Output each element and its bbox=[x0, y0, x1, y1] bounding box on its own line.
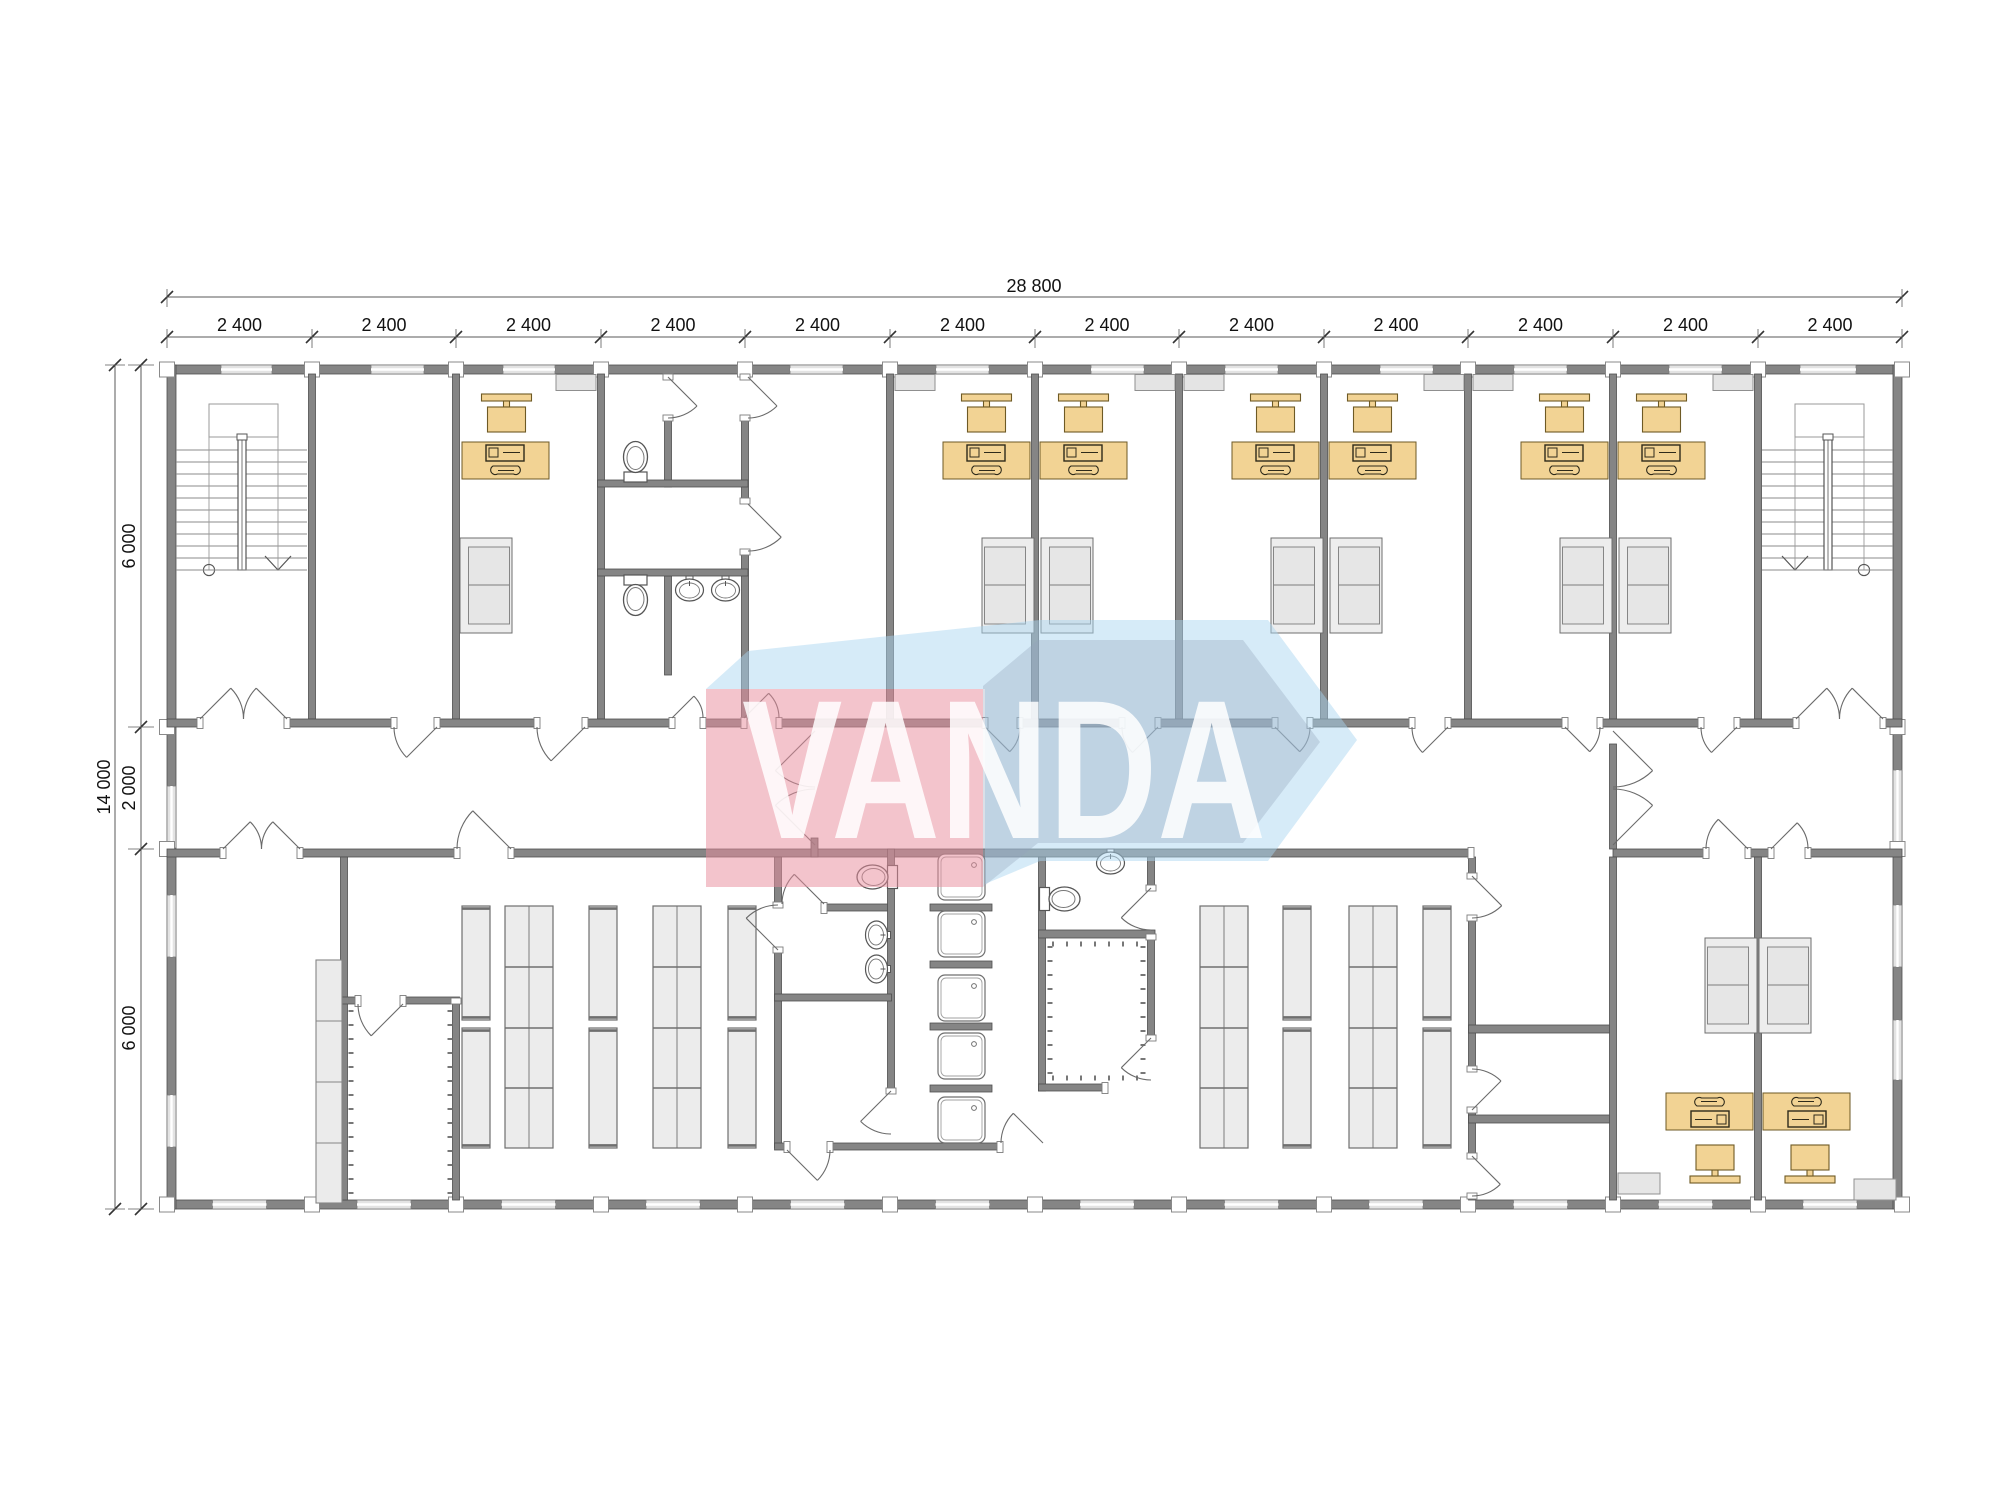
svg-text:2 400: 2 400 bbox=[1518, 315, 1563, 335]
svg-text:2 400: 2 400 bbox=[795, 315, 840, 335]
svg-text:2 400: 2 400 bbox=[217, 315, 262, 335]
svg-text:2 400: 2 400 bbox=[1807, 315, 1852, 335]
svg-text:14 000: 14 000 bbox=[94, 759, 114, 814]
svg-text:VANDA: VANDA bbox=[742, 659, 1266, 880]
svg-text:2 000: 2 000 bbox=[119, 765, 139, 810]
svg-text:6 000: 6 000 bbox=[119, 523, 139, 568]
svg-text:6 000: 6 000 bbox=[119, 1005, 139, 1050]
svg-text:2 400: 2 400 bbox=[1084, 315, 1129, 335]
svg-text:28 800: 28 800 bbox=[1006, 276, 1061, 296]
svg-text:2 400: 2 400 bbox=[361, 315, 406, 335]
svg-text:2 400: 2 400 bbox=[940, 315, 985, 335]
svg-text:2 400: 2 400 bbox=[1373, 315, 1418, 335]
svg-text:2 400: 2 400 bbox=[650, 315, 695, 335]
svg-text:2 400: 2 400 bbox=[506, 315, 551, 335]
svg-text:2 400: 2 400 bbox=[1229, 315, 1274, 335]
svg-text:2 400: 2 400 bbox=[1663, 315, 1708, 335]
